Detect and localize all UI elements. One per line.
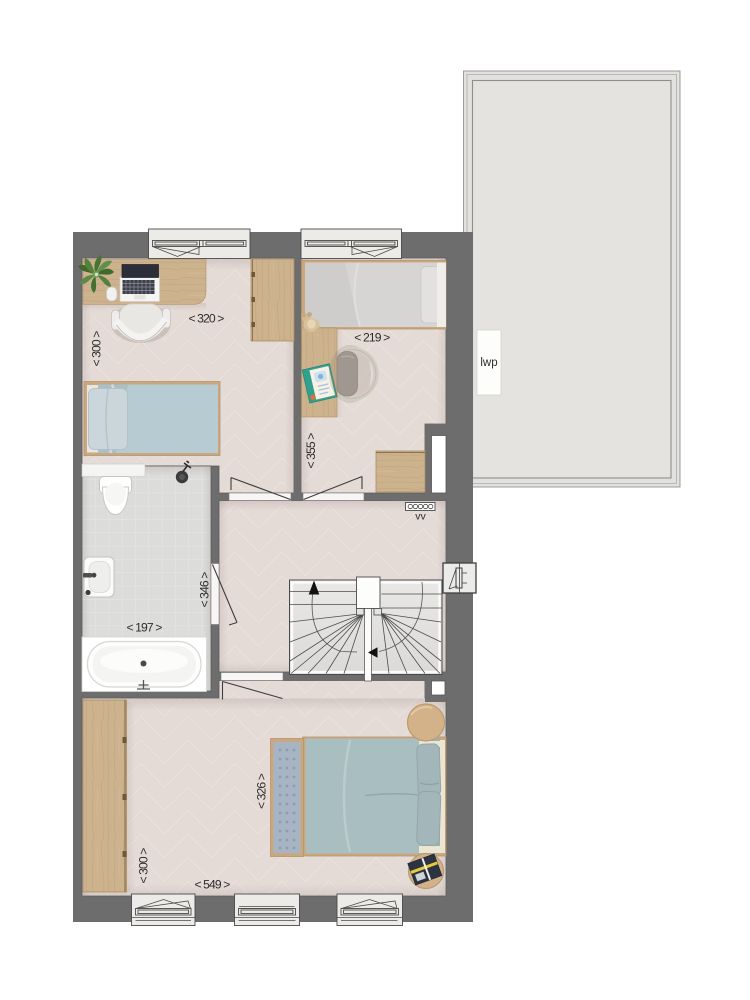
svg-text:< 346 >: < 346 > <box>198 572 212 608</box>
svg-text:< 219 >: < 219 > <box>354 331 390 345</box>
svg-text:< 326 >: < 326 > <box>255 773 269 809</box>
svg-text:< 320 >: < 320 > <box>188 312 224 326</box>
svg-text:lwp: lwp <box>480 357 497 369</box>
svg-text:vv: vv <box>415 511 426 523</box>
svg-text:< 197 >: < 197 > <box>126 621 162 635</box>
svg-text:< 549 >: < 549 > <box>194 878 230 892</box>
svg-text:< 300 >: < 300 > <box>137 848 151 884</box>
svg-text:< 355 >: < 355 > <box>304 433 318 469</box>
svg-text:< 300 >: < 300 > <box>90 331 104 367</box>
